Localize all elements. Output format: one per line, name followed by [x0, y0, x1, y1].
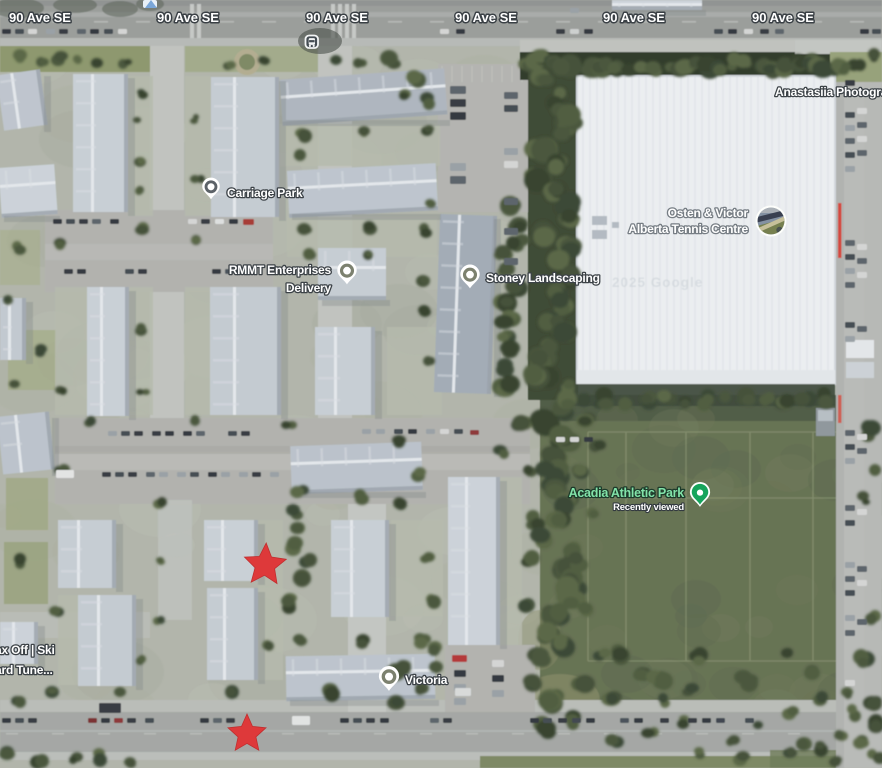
svg-text:90 Ave SE: 90 Ave SE	[603, 10, 665, 25]
svg-text:Anastasiia Photogra: Anastasiia Photogra	[775, 85, 882, 99]
svg-text:Recently viewed: Recently viewed	[613, 502, 684, 513]
svg-text:ax Off | Ski: ax Off | Ski	[0, 643, 55, 657]
svg-text:Victoria: Victoria	[405, 673, 448, 687]
svg-text:Stoney Landscaping: Stoney Landscaping	[486, 271, 600, 285]
svg-text:RMMT Enterprises: RMMT Enterprises	[229, 263, 332, 277]
svg-text:90 Ave SE: 90 Ave SE	[306, 10, 368, 25]
svg-text:90 Ave SE: 90 Ave SE	[9, 10, 71, 25]
svg-text:Carriage Park: Carriage Park	[227, 186, 303, 200]
svg-text:Alberta Tennis Centre: Alberta Tennis Centre	[628, 222, 748, 236]
svg-text:90 Ave SE: 90 Ave SE	[455, 10, 517, 25]
svg-text:Osten & Victor: Osten & Victor	[668, 206, 749, 220]
svg-text:Acadia Athletic Park: Acadia Athletic Park	[569, 486, 685, 500]
svg-text:Delivery: Delivery	[286, 281, 332, 295]
svg-text:90 Ave SE: 90 Ave SE	[752, 10, 814, 25]
svg-text:90 Ave SE: 90 Ave SE	[157, 10, 219, 25]
svg-text:ard Tune...: ard Tune...	[0, 663, 53, 677]
